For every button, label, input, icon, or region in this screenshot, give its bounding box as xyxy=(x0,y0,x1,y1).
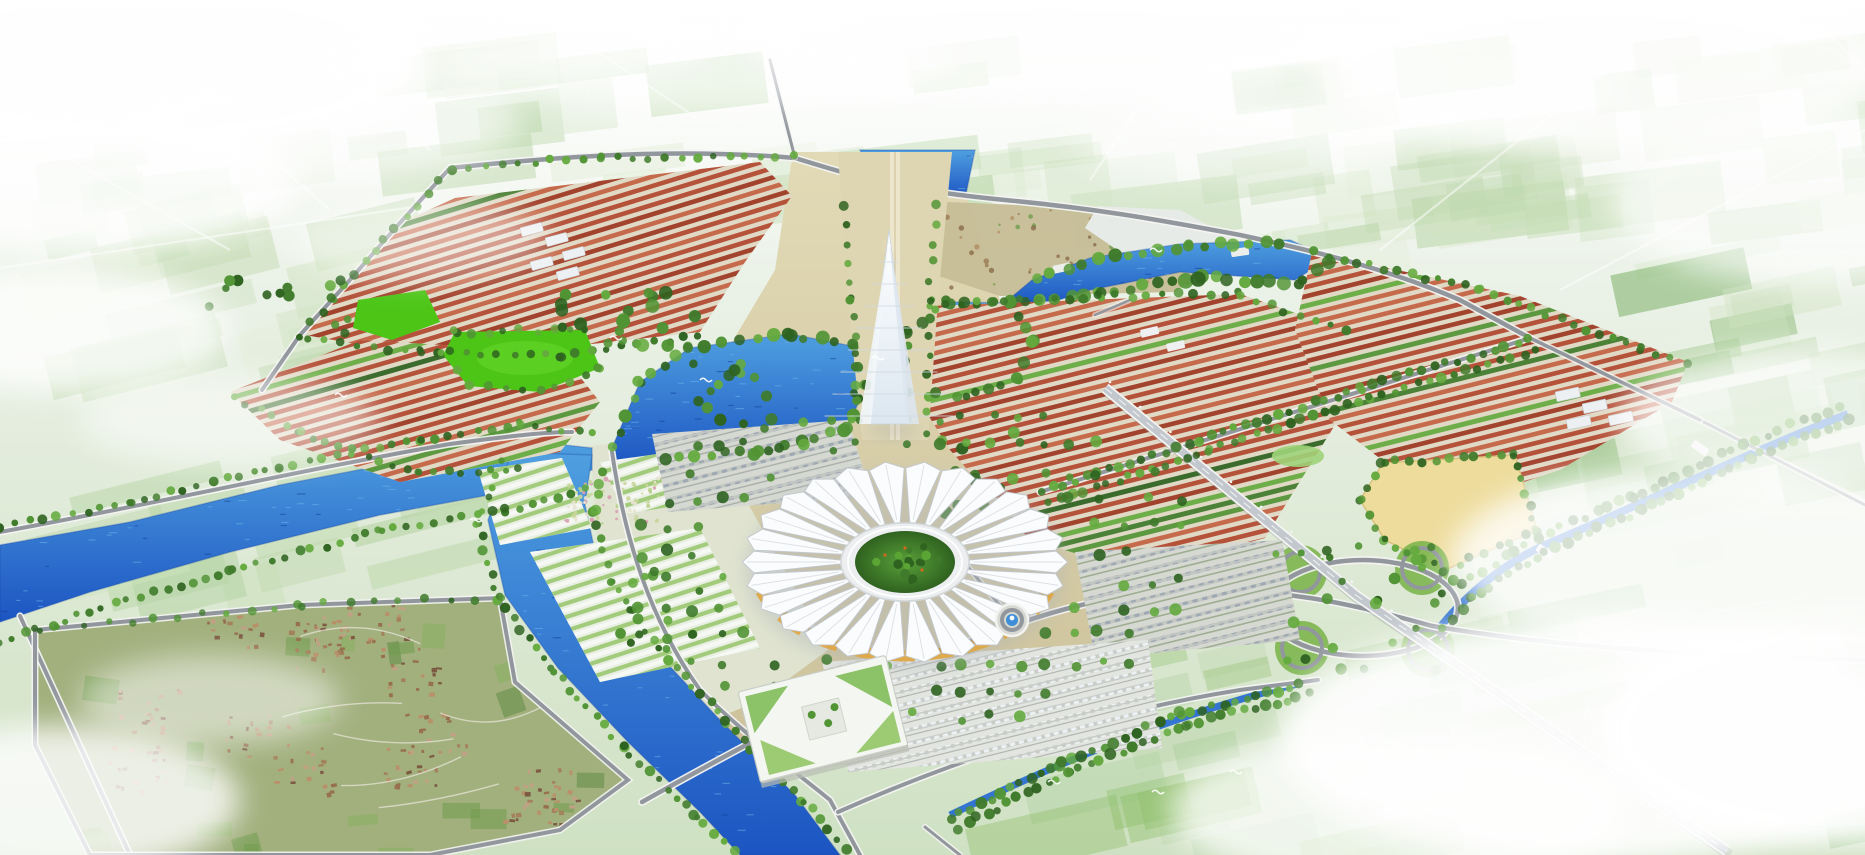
tree xyxy=(464,349,470,355)
tree xyxy=(1338,578,1345,585)
tree xyxy=(430,435,440,445)
tree xyxy=(1426,377,1433,384)
tree xyxy=(1038,770,1045,777)
tree xyxy=(85,509,93,517)
tree xyxy=(617,429,625,437)
tree xyxy=(683,343,693,353)
tree xyxy=(1107,738,1119,750)
village-house xyxy=(503,819,509,824)
tree xyxy=(844,242,851,249)
tree xyxy=(251,468,258,475)
tree xyxy=(1150,607,1159,616)
village-house xyxy=(207,622,210,625)
tree xyxy=(1405,367,1414,376)
tree xyxy=(925,314,935,324)
tree xyxy=(305,544,314,553)
tree xyxy=(973,297,981,305)
tree xyxy=(616,587,622,593)
tree xyxy=(1219,428,1226,435)
village-house xyxy=(306,751,310,755)
tree xyxy=(1094,291,1102,299)
tree xyxy=(1171,442,1182,453)
tree xyxy=(112,598,121,607)
tree xyxy=(694,814,700,820)
tree xyxy=(1300,654,1310,664)
tree xyxy=(764,446,773,455)
tree xyxy=(827,416,836,425)
tree xyxy=(1129,294,1138,303)
flower-garden-dot xyxy=(572,501,576,505)
village-house xyxy=(536,769,541,773)
tree xyxy=(956,412,964,420)
tree xyxy=(851,438,858,445)
tree xyxy=(319,308,328,317)
tree xyxy=(1595,330,1604,339)
village-house xyxy=(569,770,572,775)
tree xyxy=(689,310,701,322)
village-house xyxy=(544,797,549,802)
tree xyxy=(641,573,648,580)
tree xyxy=(149,614,158,623)
tree xyxy=(615,628,626,639)
flower-garden-dot xyxy=(588,480,592,484)
tree xyxy=(1100,658,1107,665)
village-house xyxy=(346,629,349,632)
tree xyxy=(686,605,698,617)
tree xyxy=(1510,452,1517,459)
courtyard-tree xyxy=(895,552,903,560)
tree xyxy=(582,371,590,379)
tree xyxy=(720,681,730,691)
courtyard-accent xyxy=(920,568,923,571)
tree xyxy=(698,340,711,353)
tree xyxy=(1221,291,1229,299)
tree xyxy=(1268,300,1277,309)
tree xyxy=(837,424,851,438)
village-house xyxy=(296,622,301,626)
tree xyxy=(852,396,861,405)
tree xyxy=(1236,291,1244,299)
tree xyxy=(1320,407,1329,416)
flower-garden-dot xyxy=(587,505,590,508)
tree xyxy=(379,527,386,534)
tree xyxy=(721,838,728,845)
village-house xyxy=(227,749,230,753)
tree xyxy=(541,655,547,661)
tree xyxy=(340,329,349,338)
tree xyxy=(674,795,681,802)
tree xyxy=(1505,353,1515,363)
tree xyxy=(1071,629,1079,637)
farm-speckle xyxy=(1088,235,1091,238)
tree xyxy=(1093,549,1105,561)
tree xyxy=(627,639,635,647)
tree xyxy=(1448,615,1458,625)
flower-garden-dot xyxy=(595,516,599,520)
flower-garden-dot xyxy=(590,493,593,496)
tree xyxy=(1124,659,1134,669)
farm-speckle xyxy=(1028,214,1033,219)
tree xyxy=(1033,295,1042,304)
tree xyxy=(714,708,721,715)
tree xyxy=(1159,291,1165,297)
village-house xyxy=(408,751,411,754)
tree xyxy=(1174,288,1184,298)
tree xyxy=(1016,661,1027,672)
tree xyxy=(1038,488,1046,496)
tree xyxy=(1417,458,1426,467)
tree xyxy=(1454,359,1461,366)
tree xyxy=(923,408,931,416)
tree xyxy=(149,586,158,595)
tree xyxy=(993,807,1000,814)
tree xyxy=(633,613,644,624)
tree xyxy=(475,469,482,476)
tree xyxy=(1117,478,1124,485)
tree xyxy=(1102,480,1109,487)
farm-speckle xyxy=(1018,213,1020,215)
village-house xyxy=(554,785,557,788)
tree xyxy=(750,373,759,382)
tree xyxy=(646,299,660,313)
tree xyxy=(1431,560,1437,566)
tree xyxy=(376,444,384,452)
tree xyxy=(535,329,541,335)
tree xyxy=(394,597,401,604)
tree xyxy=(540,496,547,503)
tree xyxy=(908,707,917,716)
tree xyxy=(1527,303,1536,312)
tree xyxy=(1121,546,1131,556)
tree xyxy=(1285,409,1292,416)
tree xyxy=(492,350,500,358)
tree xyxy=(850,313,858,321)
village-field xyxy=(471,809,507,829)
tree xyxy=(1521,351,1530,360)
village-house xyxy=(551,798,556,800)
village-house xyxy=(254,645,259,650)
tree xyxy=(1014,312,1024,322)
tree xyxy=(1408,268,1418,278)
tree xyxy=(445,466,454,475)
village-house xyxy=(396,765,400,769)
tree xyxy=(1231,438,1239,446)
tree xyxy=(1204,448,1212,456)
flower-garden-dot xyxy=(565,519,569,523)
cloud xyxy=(1070,100,1410,180)
tree xyxy=(1075,750,1087,762)
tree xyxy=(1439,567,1448,576)
village-house xyxy=(429,692,435,697)
tree xyxy=(483,163,489,169)
tree xyxy=(1006,782,1015,791)
village-house xyxy=(428,719,433,724)
village-house xyxy=(387,686,392,688)
village-house xyxy=(289,630,295,635)
flower-garden-dot xyxy=(656,476,660,480)
courtyard-accent xyxy=(883,553,886,556)
tree xyxy=(708,697,717,706)
tree xyxy=(1490,290,1499,299)
tree xyxy=(8,636,14,642)
tree xyxy=(465,165,472,172)
tree xyxy=(1200,243,1209,252)
village-field xyxy=(421,623,445,649)
tree xyxy=(416,522,423,529)
tree xyxy=(1026,335,1038,347)
tree xyxy=(1308,410,1319,421)
tree xyxy=(319,598,326,605)
tree xyxy=(1283,656,1291,664)
farm-speckle xyxy=(974,244,979,249)
tree xyxy=(503,468,509,474)
tree xyxy=(934,438,946,450)
village-house xyxy=(417,765,422,768)
tree xyxy=(594,490,603,499)
tree xyxy=(402,347,408,353)
tree xyxy=(657,322,669,334)
tree xyxy=(816,331,830,345)
village-house xyxy=(260,632,265,637)
flower-garden-dot xyxy=(646,500,650,504)
tree xyxy=(770,660,780,670)
tree xyxy=(492,472,499,479)
tree xyxy=(774,443,784,453)
tree xyxy=(748,448,761,461)
tree xyxy=(852,333,860,341)
light-pole xyxy=(1109,381,1112,384)
tree xyxy=(1132,728,1143,739)
flower-garden-dot xyxy=(633,509,637,513)
tree xyxy=(661,572,671,582)
tree xyxy=(1532,346,1539,353)
tree xyxy=(1479,350,1487,358)
tree xyxy=(1216,441,1223,448)
tree xyxy=(1311,263,1324,276)
tree xyxy=(580,155,588,163)
tree xyxy=(174,614,182,622)
tree xyxy=(1377,375,1388,386)
tree xyxy=(1376,458,1386,468)
tree xyxy=(562,156,571,165)
tree xyxy=(1226,239,1239,252)
tree xyxy=(1264,426,1272,434)
tree xyxy=(351,534,359,542)
tree xyxy=(582,484,589,491)
tree xyxy=(500,603,510,613)
tree xyxy=(1334,394,1342,402)
tree xyxy=(630,156,636,162)
tree xyxy=(635,630,643,638)
tree xyxy=(388,440,396,448)
tree xyxy=(1251,417,1262,428)
village-house xyxy=(516,818,519,821)
village-house xyxy=(438,751,442,754)
tree xyxy=(558,428,565,435)
tree xyxy=(593,363,602,372)
tree xyxy=(845,296,854,305)
village-house xyxy=(516,813,522,818)
tree xyxy=(659,453,671,465)
tree xyxy=(739,438,747,446)
tree xyxy=(551,383,557,389)
tree xyxy=(1448,278,1456,286)
tree xyxy=(753,334,762,343)
village-house xyxy=(321,747,324,750)
village-house xyxy=(543,805,549,809)
tree xyxy=(305,318,313,326)
village-house xyxy=(296,638,301,642)
tree xyxy=(1000,297,1008,305)
tree xyxy=(479,532,488,541)
tree xyxy=(644,156,651,163)
tree xyxy=(662,604,671,613)
flower-garden-dot xyxy=(586,493,591,498)
tree xyxy=(1312,317,1320,325)
aerial-masterplan-rendering: Aerial rendering of a planned new urban … xyxy=(0,0,1865,855)
tree xyxy=(625,752,632,759)
tree xyxy=(1120,750,1127,757)
village-house xyxy=(385,612,389,616)
tree xyxy=(1177,522,1184,529)
farm-speckle xyxy=(998,224,1000,226)
tree xyxy=(446,347,454,355)
village-house xyxy=(313,653,319,658)
village-house xyxy=(528,769,531,774)
village-house xyxy=(332,621,336,624)
tree xyxy=(800,799,806,805)
tree xyxy=(1014,690,1022,698)
tree xyxy=(689,360,698,369)
tree xyxy=(1294,413,1305,424)
tree xyxy=(720,716,730,726)
tree xyxy=(1260,236,1273,249)
tree xyxy=(519,387,526,394)
spire-shadow xyxy=(867,423,919,437)
tree xyxy=(499,328,506,335)
tree xyxy=(1125,459,1135,469)
village-house xyxy=(554,808,558,811)
tree xyxy=(361,529,369,537)
tree xyxy=(1151,467,1160,476)
village-house xyxy=(401,662,405,665)
tree xyxy=(466,382,473,389)
village-house xyxy=(322,668,325,672)
tree xyxy=(224,565,234,575)
tree xyxy=(659,286,673,300)
tree xyxy=(214,571,223,580)
tree xyxy=(1185,707,1195,717)
tree xyxy=(694,522,704,532)
tree xyxy=(542,350,549,357)
tree xyxy=(252,560,258,566)
tree xyxy=(1040,689,1050,699)
tree xyxy=(438,349,445,356)
tree xyxy=(1008,426,1020,438)
tree xyxy=(1197,706,1207,716)
tree xyxy=(632,602,644,614)
tree xyxy=(486,494,493,501)
tree xyxy=(420,594,429,603)
tree xyxy=(123,596,129,602)
tree xyxy=(1124,251,1133,260)
tree xyxy=(1441,358,1449,366)
tree xyxy=(954,808,962,816)
tree xyxy=(1262,414,1273,425)
tree xyxy=(389,463,395,469)
tree xyxy=(986,660,995,669)
tree xyxy=(96,504,103,511)
tree xyxy=(852,350,859,357)
tree xyxy=(955,687,966,698)
tree xyxy=(1436,372,1447,383)
tree xyxy=(661,362,670,371)
farm-speckle xyxy=(959,236,962,239)
tree xyxy=(723,370,734,381)
tree xyxy=(693,153,702,162)
village-house xyxy=(336,620,342,623)
tree xyxy=(404,465,412,473)
tree xyxy=(597,534,605,542)
tree xyxy=(984,709,993,718)
tree xyxy=(714,604,723,613)
tree xyxy=(650,636,659,645)
tree xyxy=(566,490,575,499)
tree xyxy=(269,558,276,565)
village-house xyxy=(211,629,215,631)
tree xyxy=(664,525,672,533)
tree xyxy=(650,567,659,576)
tree xyxy=(111,502,118,509)
tree xyxy=(304,335,311,342)
tree xyxy=(1076,259,1087,270)
farm-speckle xyxy=(1031,225,1036,230)
tree xyxy=(1496,356,1504,364)
tree xyxy=(1124,472,1131,479)
courtyard-tree xyxy=(916,559,923,566)
tree xyxy=(500,504,509,513)
tree xyxy=(1405,457,1414,466)
tree xyxy=(682,671,691,680)
village-house xyxy=(274,781,280,784)
flower-garden-dot xyxy=(607,495,611,499)
tree xyxy=(741,152,748,159)
tree xyxy=(1139,738,1147,746)
flower-garden-dot xyxy=(653,486,656,489)
tree xyxy=(688,684,694,690)
tree xyxy=(516,420,524,428)
tree xyxy=(557,352,566,361)
tree xyxy=(1459,452,1468,461)
tree xyxy=(1090,470,1100,480)
tree xyxy=(574,317,587,330)
tree xyxy=(224,275,235,286)
tree xyxy=(514,324,523,333)
fountain-spray xyxy=(1010,616,1015,621)
tree xyxy=(1161,463,1169,471)
tree xyxy=(760,424,769,433)
tree xyxy=(661,339,674,352)
tree xyxy=(607,578,615,586)
tree xyxy=(799,417,809,427)
tree xyxy=(798,439,810,451)
tree xyxy=(1141,721,1150,730)
tree xyxy=(1014,376,1023,385)
tree xyxy=(453,365,462,374)
farm-speckle xyxy=(985,263,989,267)
tree xyxy=(713,440,724,451)
tree xyxy=(296,334,303,341)
